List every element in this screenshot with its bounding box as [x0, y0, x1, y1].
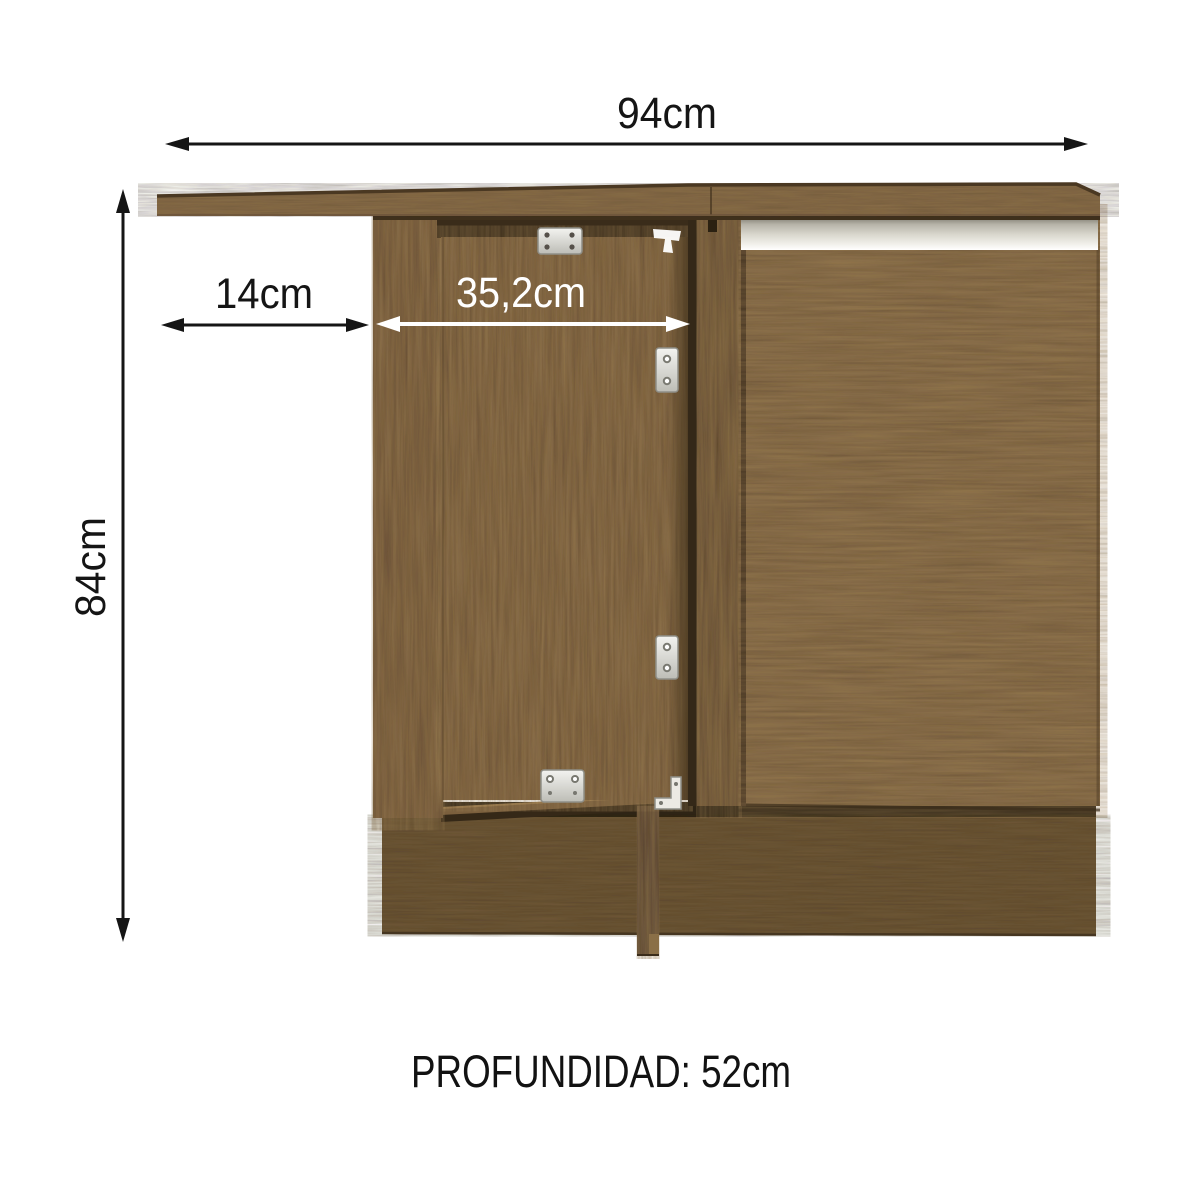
- diagram-canvas: 94cm 84cm 14cm 35,2cm PROFUNDIDAD: 52cm: [0, 0, 1200, 1200]
- hinge-plate-upper: [656, 348, 678, 392]
- handle-strip: [741, 219, 1098, 250]
- hinge-plate-lower: [656, 636, 678, 679]
- hinge-plate-bottom: [541, 770, 584, 802]
- left-frame-panel: [373, 216, 443, 818]
- right-door: [746, 216, 1100, 810]
- corner-door: [441, 237, 688, 800]
- plinth: [382, 802, 1096, 935]
- width-dimension-label: 94cm: [617, 89, 717, 138]
- height-dimension-label: 84cm: [67, 517, 115, 617]
- corner-stile: [697, 216, 741, 806]
- offset-dimension-label: 14cm: [215, 270, 313, 318]
- corner-support-leg: [637, 806, 659, 956]
- cabinet-dimension-diagram: 94cm 84cm 14cm 35,2cm PROFUNDIDAD: 52cm: [0, 0, 1200, 1200]
- door-gap: [688, 216, 697, 806]
- door-width-dimension-label: 35,2cm: [456, 269, 586, 317]
- hinge-plate-top: [538, 228, 582, 254]
- stile-door-gap: [741, 216, 746, 806]
- depth-label: PROFUNDIDAD: 52cm: [411, 1046, 791, 1097]
